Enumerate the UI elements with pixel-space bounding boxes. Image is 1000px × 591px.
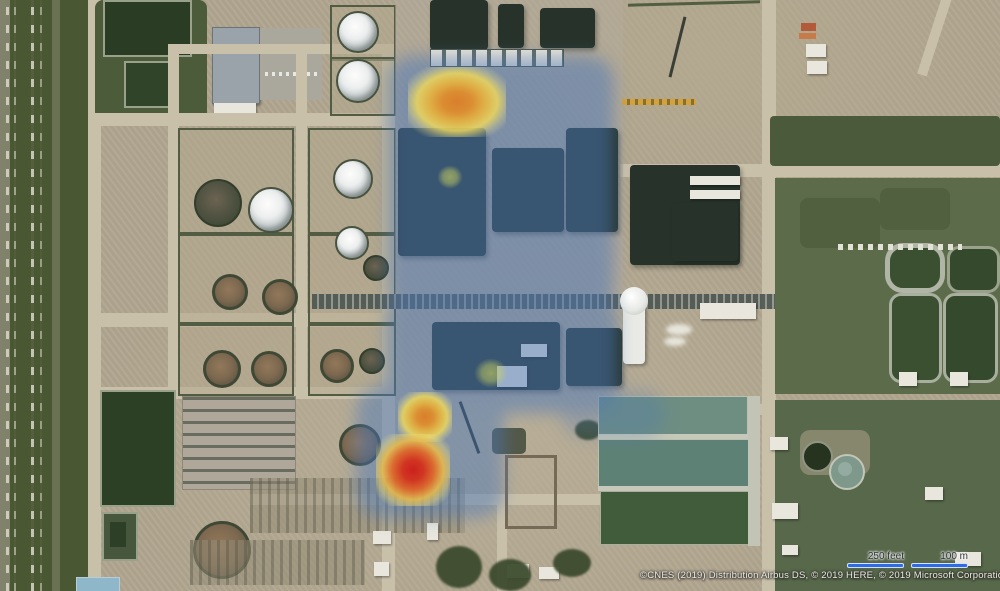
shed	[770, 437, 788, 450]
warehouse-small	[214, 103, 256, 113]
shed	[772, 503, 798, 519]
storage-tank-brown	[203, 350, 241, 388]
process-unit	[492, 148, 564, 232]
scrub-patch	[800, 198, 880, 248]
storage-tank-brown	[262, 279, 298, 315]
unit-roof-white	[690, 190, 740, 199]
shed	[807, 61, 827, 74]
admin-building	[212, 27, 260, 104]
steam-plume	[664, 337, 686, 346]
clarifier-center	[838, 462, 852, 476]
shed	[925, 487, 943, 500]
shed	[782, 545, 798, 555]
rail-track	[40, 0, 42, 591]
white-tower-dome	[620, 287, 648, 315]
tree-cluster	[436, 546, 482, 588]
shed	[374, 562, 389, 576]
basin-walkway	[598, 434, 748, 439]
warehouse-small	[521, 344, 547, 357]
tree-cluster	[553, 549, 591, 577]
map-canvas[interactable]: 250 feet 100 m ©CNES (2019) Distribution…	[0, 0, 1000, 591]
storage-tank-dark	[359, 348, 385, 374]
parking-lot	[260, 28, 322, 100]
yellow-pipeline	[622, 99, 696, 105]
storage-tank-brown	[320, 349, 354, 383]
basin-walkway	[598, 486, 750, 491]
shed	[373, 531, 391, 544]
tree-cluster	[489, 559, 531, 591]
blue-pool	[76, 577, 120, 591]
rail-service-strip	[52, 0, 60, 591]
process-unit	[566, 328, 622, 386]
red-containers	[801, 23, 816, 31]
derrick-shadow	[459, 401, 481, 454]
unit-roof-white	[690, 176, 740, 185]
treatment-pond	[947, 246, 1000, 293]
process-unit	[498, 4, 524, 48]
boundary-pipe	[628, 0, 760, 6]
warehouse-long	[700, 303, 756, 319]
scrub-patch	[880, 188, 950, 230]
shed	[806, 44, 826, 57]
corner-road	[917, 0, 953, 76]
laydown-yard	[190, 540, 365, 585]
process-unit	[398, 128, 486, 256]
storage-tank-dark	[194, 179, 242, 227]
white-dashes-row	[838, 244, 962, 250]
treatment-pond	[885, 243, 945, 293]
pond-pump-house	[950, 372, 968, 386]
process-unit	[566, 128, 618, 232]
storage-tank-dark	[363, 255, 389, 281]
basin-inner	[110, 522, 126, 547]
equipment-blob	[492, 428, 526, 454]
process-unit	[540, 8, 595, 48]
flare-boom	[669, 17, 687, 78]
retention-pond	[100, 390, 176, 507]
storage-tank-white	[335, 226, 369, 260]
storage-tank-white	[337, 11, 379, 53]
vegetation-strip	[770, 116, 1000, 166]
steam-plume	[666, 324, 692, 335]
storage-tank-white	[336, 59, 380, 103]
storage-tank-white	[333, 159, 373, 199]
tank-row-white	[430, 49, 564, 67]
pond-pump-house	[899, 372, 917, 386]
shed	[955, 552, 981, 566]
storage-tank-brown	[212, 274, 248, 310]
l-shaped-structure	[505, 455, 557, 529]
rail-track	[31, 0, 34, 591]
parked-cars-row	[265, 72, 317, 76]
rail-track	[6, 0, 9, 591]
heat-hotspot-medium	[398, 392, 452, 442]
rail-track	[14, 0, 16, 591]
process-unit-east	[672, 203, 738, 261]
process-unit	[430, 0, 488, 50]
storage-tank-brown	[251, 351, 287, 387]
truck	[427, 523, 438, 540]
storage-tank-white	[248, 187, 294, 233]
warehouse-small	[497, 366, 527, 387]
basin-walkway-vertical	[748, 396, 760, 546]
red-containers	[799, 33, 816, 39]
storage-tank-brown	[339, 424, 381, 466]
treatment-pond	[943, 293, 998, 383]
aeration-basin	[600, 491, 752, 545]
retention-pond	[124, 61, 174, 108]
clarifier-basin	[598, 396, 748, 435]
treatment-pond	[889, 293, 942, 383]
digester-tank	[802, 441, 833, 472]
electrical-substation	[182, 396, 296, 490]
clarifier-basin	[598, 439, 750, 487]
tankfarm-road	[296, 44, 307, 392]
